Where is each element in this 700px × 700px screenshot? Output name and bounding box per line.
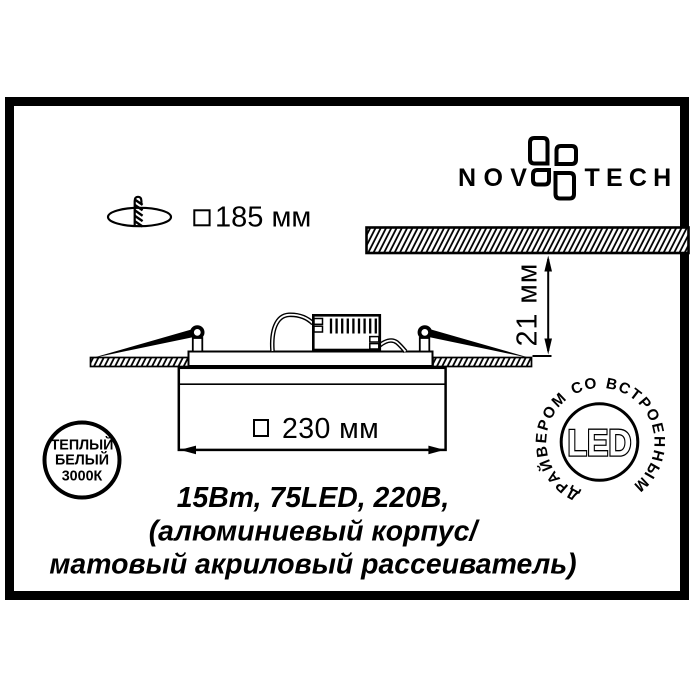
- svg-text:ТЕПЛЫЙ: ТЕПЛЫЙ: [51, 436, 114, 454]
- svg-text:БЕЛЫЙ: БЕЛЫЙ: [55, 451, 109, 469]
- svg-text:15Вт, 75LED, 220В,: 15Вт, 75LED, 220В,: [177, 482, 450, 514]
- svg-text:LED: LED: [568, 423, 632, 464]
- svg-text:матовый акриловый рассеиватель: матовый акриловый рассеиватель): [49, 549, 576, 581]
- svg-text:TECH: TECH: [585, 164, 678, 192]
- svg-text:NOV: NOV: [458, 164, 534, 192]
- svg-text:21 мм: 21 мм: [512, 263, 544, 347]
- svg-text:185 мм: 185 мм: [215, 202, 311, 234]
- svg-text:3000К: 3000К: [62, 469, 103, 485]
- svg-text:(алюминиевый корпус/: (алюминиевый корпус/: [149, 516, 481, 548]
- svg-text:230 мм: 230 мм: [282, 413, 379, 445]
